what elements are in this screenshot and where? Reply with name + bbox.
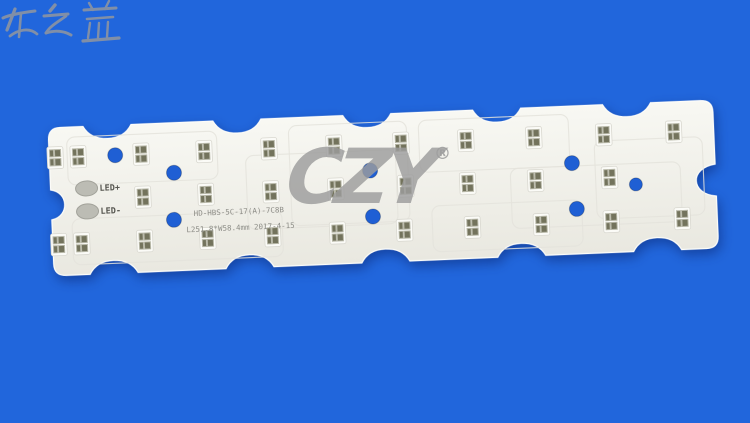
solder-pad [72, 149, 76, 156]
solder-pad [472, 219, 478, 226]
led-footprint [457, 129, 474, 152]
solder-pad [611, 222, 617, 229]
solder-pad [467, 184, 473, 191]
mounting-hole [629, 178, 643, 192]
solder-pad [143, 198, 149, 205]
mounting-hole [564, 155, 580, 171]
solder-pad [205, 195, 211, 202]
solder-pad [77, 149, 83, 156]
solder-pad [139, 242, 143, 249]
led-plus-label: LED+ [99, 183, 120, 194]
solder-pad [199, 153, 203, 160]
solder-pad [536, 225, 540, 232]
solder-pad [472, 228, 478, 235]
led-footprint [136, 230, 153, 253]
solder-pad [144, 233, 150, 240]
led-footprint [464, 216, 481, 239]
solder-pad [137, 189, 141, 196]
led-footprint [261, 137, 278, 160]
led-footprint [135, 186, 152, 209]
led-footprint [527, 169, 544, 192]
solder-pad [139, 233, 143, 240]
solder-pad [81, 244, 87, 251]
solder-pad [399, 231, 403, 238]
solder-pad [200, 187, 204, 194]
solder-pad [467, 175, 473, 182]
solder-pad [332, 225, 336, 232]
solder-pad [140, 146, 146, 153]
solder-pad [677, 220, 681, 227]
solder-pad [73, 158, 77, 165]
solder-pad [609, 178, 615, 185]
solder-pad [399, 222, 403, 229]
led-footprint [50, 233, 67, 256]
solder-pad [467, 228, 471, 235]
led-footprint [603, 210, 620, 233]
solder-pad [272, 236, 278, 243]
solder-pad [467, 219, 471, 226]
mounting-hole [166, 165, 182, 181]
solder-pad [54, 149, 60, 156]
solder-pad [673, 133, 679, 140]
solder-pad [49, 150, 53, 157]
mounting-hole [569, 201, 585, 217]
solder-pad [53, 246, 57, 253]
solder-pad [598, 136, 602, 143]
solder-pad [58, 236, 64, 243]
solder-pad [141, 155, 147, 162]
solder-pad [535, 181, 541, 188]
led-footprint [70, 145, 87, 168]
registered-trademark-icon: ® [434, 144, 451, 164]
solder-pad [603, 127, 609, 134]
solder-pad [263, 141, 267, 148]
solder-pad [598, 127, 602, 134]
led-footprint [329, 222, 346, 245]
solder-pad [268, 141, 274, 148]
solder-pad [668, 133, 672, 140]
led-plus-solder-pad [75, 180, 98, 196]
solder-pad [533, 129, 539, 136]
solder-pad [536, 216, 540, 223]
solder-pad [76, 245, 80, 252]
solder-pad [609, 169, 615, 176]
solder-pad [136, 155, 140, 162]
solder-pad [135, 146, 139, 153]
solder-pad [270, 192, 276, 199]
mounting-hole [107, 147, 123, 163]
led-footprint [47, 146, 64, 169]
solder-pad [265, 184, 269, 191]
mounting-hole [166, 212, 182, 228]
solder-pad [81, 235, 87, 242]
solder-pad [269, 150, 275, 157]
solder-pad [673, 124, 679, 131]
solder-pad [144, 242, 150, 249]
solder-pad [460, 133, 464, 140]
solder-pad [78, 158, 84, 165]
led-minus-solder-pad [76, 203, 99, 219]
solder-pad [465, 141, 471, 148]
solder-pad [460, 142, 464, 149]
solder-pad [142, 189, 148, 196]
solder-pad [76, 236, 80, 243]
solder-pad [53, 237, 57, 244]
solder-pad [198, 144, 202, 151]
led-footprint [601, 166, 618, 189]
solder-pad [668, 124, 672, 131]
solder-pad [530, 173, 534, 180]
solder-pad [604, 179, 608, 186]
led-footprint [459, 172, 476, 195]
led-minus-label: LED- [100, 206, 121, 217]
led-footprint [533, 213, 550, 236]
solder-pad [55, 158, 61, 165]
solder-pad [611, 213, 617, 220]
led-footprint [595, 123, 612, 146]
solder-pad [462, 176, 466, 183]
solder-pad [528, 139, 532, 146]
solder-pad [265, 193, 269, 200]
solder-pad [205, 186, 211, 193]
solder-pad [202, 239, 206, 246]
led-footprint [665, 120, 682, 143]
solder-pad [541, 216, 547, 223]
led-footprint [197, 183, 214, 206]
solder-pad [264, 150, 268, 157]
solder-pad [337, 234, 343, 241]
solder-pad [270, 184, 276, 191]
led-footprint [396, 219, 413, 242]
solder-pad [603, 136, 609, 143]
solder-pad [533, 138, 539, 145]
solder-pad [465, 132, 471, 139]
solder-pad [58, 245, 64, 252]
solder-pad [203, 143, 209, 150]
led-footprint [196, 140, 213, 163]
solder-pad [337, 225, 343, 232]
product-photo: LED+ LED- HD-HBS-5C-17(A)-7C8B L251.8*W5… [0, 0, 750, 423]
solder-pad [682, 210, 688, 217]
led-footprint [133, 143, 150, 166]
led-footprint [73, 232, 90, 255]
solder-pad [677, 211, 681, 218]
watermark-brand-text: CZY [283, 139, 436, 215]
solder-pad [682, 219, 688, 226]
solder-pad [530, 182, 534, 189]
led-footprint [262, 180, 279, 203]
solder-pad [204, 152, 210, 159]
solder-pad [267, 237, 271, 244]
solder-pad [604, 170, 608, 177]
watermark-cjk-calligraphy [0, 0, 128, 46]
solder-pad [606, 223, 610, 230]
solder-pad [332, 234, 336, 241]
solder-pad [528, 130, 532, 137]
solder-pad [138, 198, 142, 205]
solder-pad [606, 214, 610, 221]
solder-pad [200, 196, 204, 203]
solder-pad [50, 159, 54, 166]
solder-pad [207, 239, 213, 246]
solder-pad [462, 185, 466, 192]
led-footprint [525, 126, 542, 149]
solder-pad [535, 172, 541, 179]
solder-pad [404, 222, 410, 229]
solder-pad [541, 225, 547, 232]
led-footprint [674, 207, 691, 230]
solder-pad [404, 231, 410, 238]
